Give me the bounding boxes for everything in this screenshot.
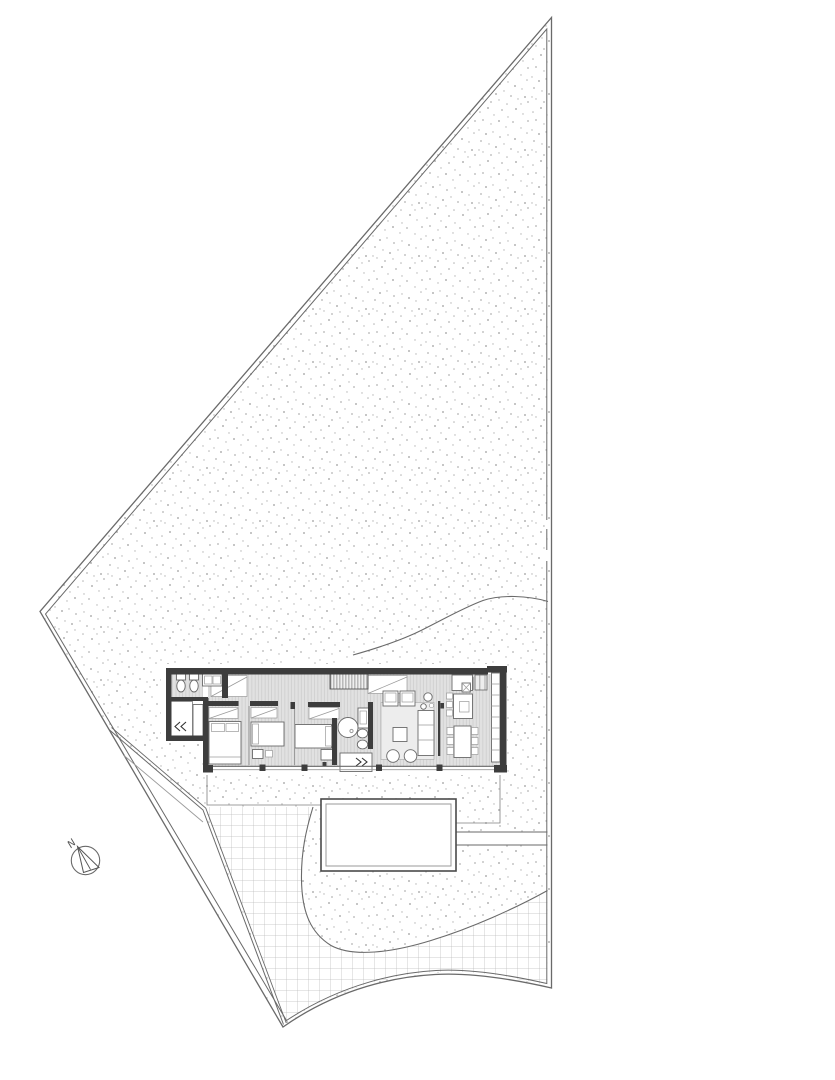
west-wall — [166, 668, 172, 740]
dining-area — [447, 726, 478, 758]
pillow — [253, 724, 259, 744]
sink-icon — [213, 676, 221, 684]
bedroom1-west-wall — [203, 698, 209, 772]
dining-chair — [472, 738, 479, 745]
tv-wall — [438, 701, 440, 756]
site-plan-page: N — [0, 0, 835, 1080]
pillow — [326, 727, 332, 747]
dining-table — [454, 726, 471, 758]
toilet-tank-icon — [190, 674, 199, 680]
shower-stall — [171, 702, 193, 739]
bedroom2-head-wall — [250, 701, 278, 706]
living-west-wall — [368, 702, 373, 749]
facade-post — [376, 765, 382, 772]
stool — [266, 751, 273, 758]
wing-south-wall — [166, 736, 209, 742]
bidet-icon — [357, 740, 367, 749]
sink-icon — [460, 702, 470, 713]
site-plan-drawing: N — [0, 0, 835, 1080]
dining-chair — [447, 738, 454, 745]
dining-chair — [472, 748, 479, 755]
armchair-cushion — [402, 693, 413, 702]
dining-chair — [447, 728, 454, 735]
bedroom1-head-wall — [209, 701, 239, 706]
toilet-tank-icon — [177, 674, 186, 680]
bar-stool — [447, 702, 453, 708]
garden-path-band — [456, 832, 548, 845]
wall-post — [291, 702, 296, 709]
wardrobes — [209, 708, 339, 720]
bedroom-1 — [209, 722, 241, 765]
bar-stool — [447, 710, 453, 716]
boundary-gate-gap — [545, 520, 549, 529]
toilet-icon — [190, 680, 198, 692]
kitchen-tall-cabinets — [492, 673, 501, 762]
armchair-cushion — [385, 693, 396, 702]
pool-water-edge — [326, 804, 451, 866]
lamp-icon — [323, 762, 327, 766]
swimming-pool — [321, 799, 456, 871]
wc-divider-wall — [222, 674, 228, 698]
north-wall — [166, 668, 488, 675]
side-table — [421, 704, 427, 710]
bedroom3-head-wall — [308, 702, 340, 707]
sink-icon — [205, 676, 213, 684]
boundary-gate-gap — [545, 550, 549, 561]
pouf — [404, 750, 417, 763]
corner-wall — [494, 765, 507, 773]
pillow — [226, 724, 239, 732]
side-table — [424, 693, 432, 701]
pouf — [387, 750, 400, 763]
sink-icon — [360, 711, 367, 724]
sofa — [418, 711, 434, 756]
house — [161, 664, 507, 775]
dining-chair — [472, 728, 479, 735]
stair-grille — [330, 672, 368, 689]
toilet-icon — [177, 680, 185, 692]
pillow — [212, 724, 225, 732]
nightstand — [253, 750, 264, 759]
door-leaf — [193, 705, 203, 737]
facade-post — [437, 765, 443, 772]
dining-chair — [447, 748, 454, 755]
facade-post — [302, 765, 308, 772]
coffee-table — [393, 728, 407, 742]
round-shower-icon — [338, 718, 358, 738]
corner-wall — [203, 765, 213, 773]
east-wall — [500, 666, 507, 773]
facade-post — [260, 765, 266, 772]
toilet-icon — [357, 729, 367, 738]
side-table — [429, 703, 433, 707]
bar-stool — [447, 693, 453, 699]
bathroom-west-wall — [332, 718, 337, 765]
wing-divider-wall — [166, 697, 208, 701]
tv-icon — [441, 703, 445, 709]
